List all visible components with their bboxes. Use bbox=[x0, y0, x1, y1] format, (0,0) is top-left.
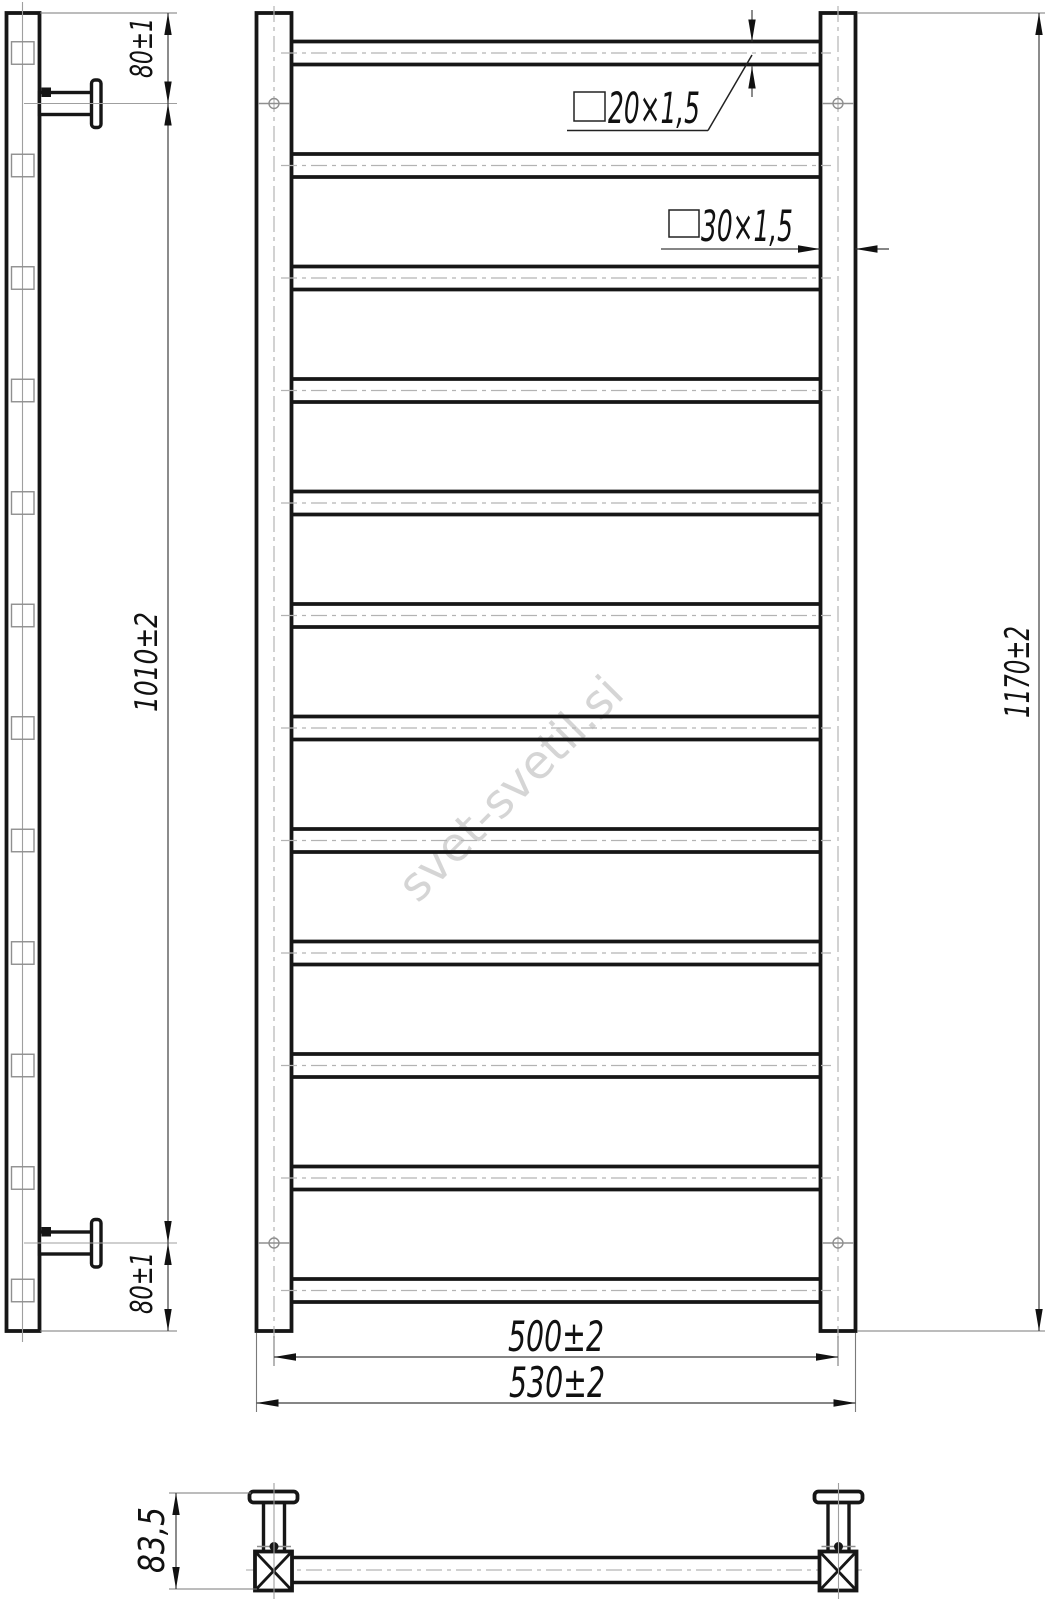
callout-text-rung-tube: 20×1,5 bbox=[608, 84, 700, 134]
dimensions: 80±1 1010±2 80±1 1170±2 500±2 530±2 bbox=[40, 10, 1045, 1589]
dim-text-bracket-top-offset: 80±1 bbox=[125, 18, 160, 78]
wall-bracket-top bbox=[24, 80, 177, 128]
dim-text-width-centers: 500±2 bbox=[508, 1312, 604, 1361]
dim-overall-height: 1170±2 bbox=[857, 13, 1045, 1331]
dim-text-overall-width: 530±2 bbox=[509, 1358, 605, 1407]
dim-text-bracket-bottom-offset: 80±1 bbox=[125, 1252, 160, 1314]
square-symbol bbox=[669, 210, 699, 237]
callout-rung-tube: 20×1,5 bbox=[567, 10, 752, 134]
dim-text-bracket-span: 1010±2 bbox=[129, 612, 165, 712]
bottom-view bbox=[246, 1483, 866, 1599]
watermark: svet-svetil.si bbox=[387, 665, 634, 912]
technical-drawing: svet-svetil.si bbox=[0, 0, 1046, 1600]
drawing-sheet: svet-svetil.si bbox=[0, 0, 1046, 1600]
square-symbol bbox=[574, 92, 605, 121]
bracket-screw bbox=[42, 88, 52, 98]
bracket-screw bbox=[42, 1227, 52, 1237]
dim-depth: 83,5 bbox=[132, 1493, 257, 1589]
dim-left-chain: 80±1 1010±2 80±1 bbox=[40, 13, 177, 1331]
callout-text-post-tube: 30×1,5 bbox=[701, 202, 793, 252]
dim-text-overall-height: 1170±2 bbox=[998, 626, 1038, 718]
bottom-left-bracket bbox=[250, 1483, 298, 1599]
bottom-right-bracket bbox=[815, 1483, 863, 1599]
dim-text-depth: 83,5 bbox=[132, 1507, 173, 1573]
